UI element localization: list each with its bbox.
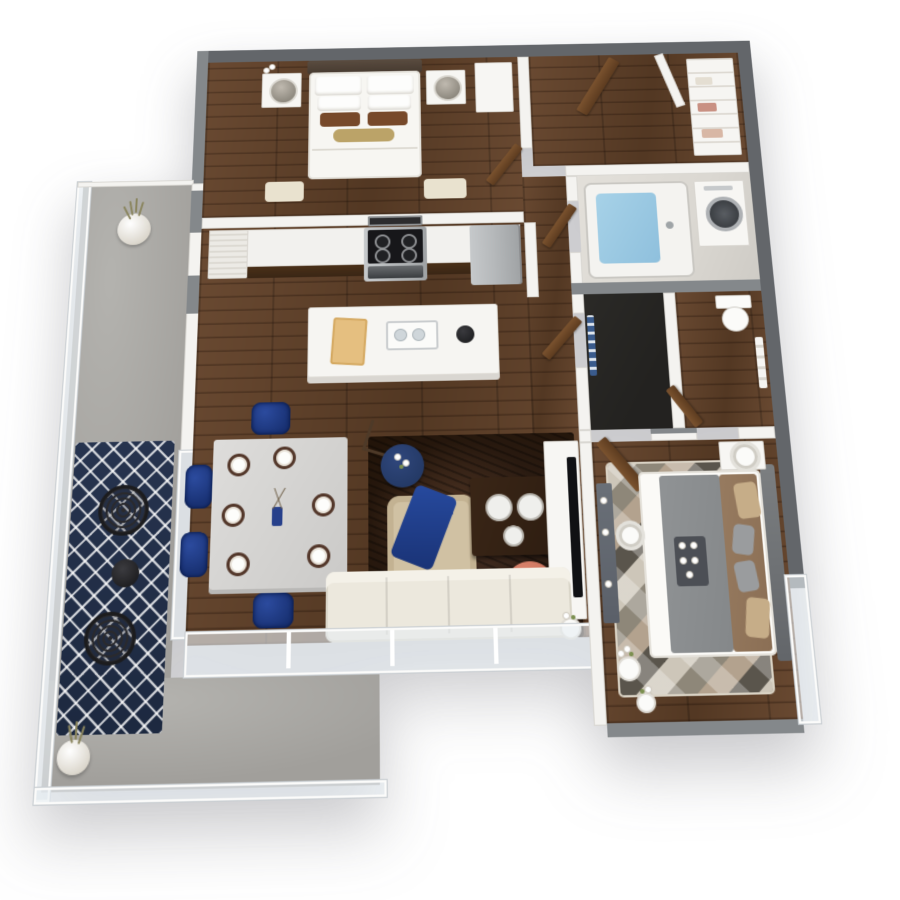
washer-door [704, 196, 744, 231]
bed2-pillow-gray [732, 523, 755, 556]
bedroom2-bed [638, 470, 778, 659]
kitchen-cooktop [368, 229, 423, 264]
place-setting [227, 453, 250, 476]
burner [375, 248, 391, 263]
bedroom1-bedside-rug-left [265, 181, 304, 202]
tray-round [516, 493, 544, 521]
island-kettle [456, 325, 474, 343]
bed-pillow [317, 96, 361, 112]
burner [401, 234, 417, 249]
dining-chair-left1 [184, 464, 213, 508]
kitchen-utility-closet [208, 230, 249, 279]
washer-dryer [693, 180, 749, 247]
bed-pillow [368, 95, 412, 111]
room-bathroom1 [566, 173, 762, 295]
bed2-breakfast-tray [674, 536, 709, 586]
bathtub [583, 181, 695, 279]
bed-duvet-fold [312, 147, 417, 151]
burner [401, 248, 417, 263]
bedroom1-bed [308, 71, 422, 180]
navy-throw-blanket [390, 484, 458, 571]
dining-chair-bottom [252, 592, 293, 628]
bedroom1-wardrobe [474, 62, 513, 112]
bed-accent-pillow [320, 112, 360, 127]
wall-cap-bath-bottom [650, 428, 697, 434]
bathtub-water [596, 193, 661, 264]
tray-round [503, 525, 525, 547]
place-setting [221, 503, 245, 527]
kitchen-microwave [368, 215, 423, 226]
stored-linens [701, 129, 723, 138]
tray-round [485, 494, 513, 522]
place-setting [312, 493, 335, 517]
balcony-planter-top [117, 210, 154, 244]
room-entry [529, 53, 750, 177]
dining-chair-top [251, 402, 291, 435]
bedroom1-bedside-rug-right [424, 178, 467, 199]
bed-bolster [333, 128, 394, 142]
apartment-floorplan [29, 40, 889, 873]
centerpiece-branches [266, 488, 291, 510]
wall-bath-bedroom2-c [738, 426, 776, 439]
balcony-trellis-rug [56, 441, 175, 736]
kitchen-refrigerator [469, 224, 522, 285]
stored-linens [697, 103, 717, 112]
place-setting [226, 552, 250, 576]
kitchen-oven-door [368, 265, 423, 278]
bedroom2-brick-ledge-bottom [608, 733, 810, 787]
wall-bathblock-left-a [566, 176, 579, 202]
glass [394, 329, 407, 342]
centerpiece-vase [272, 507, 283, 526]
bed-pillow [367, 75, 414, 95]
stored-linens [695, 77, 713, 85]
dining-chair-left2 [179, 532, 208, 578]
wall-bath-bedroom2-a [579, 430, 592, 442]
glass [412, 328, 425, 341]
room-bedroom1 [202, 57, 536, 231]
dining-table [209, 437, 348, 590]
place-setting [273, 446, 296, 469]
bed-accent-pillow [368, 111, 408, 126]
balcony-planter-corner [56, 735, 94, 773]
place-setting [307, 544, 330, 568]
washer-controls [703, 186, 732, 191]
entry-shelf-closet [686, 58, 742, 156]
floorplan-stage [0, 0, 900, 900]
island-serving-tray [386, 320, 439, 350]
room-wc [675, 291, 775, 428]
living-window-wall [184, 624, 595, 678]
burner [375, 234, 391, 249]
bed2-pillow-tan [745, 597, 770, 639]
bathtub-faucet [666, 221, 674, 229]
bed-pillow [315, 76, 362, 96]
